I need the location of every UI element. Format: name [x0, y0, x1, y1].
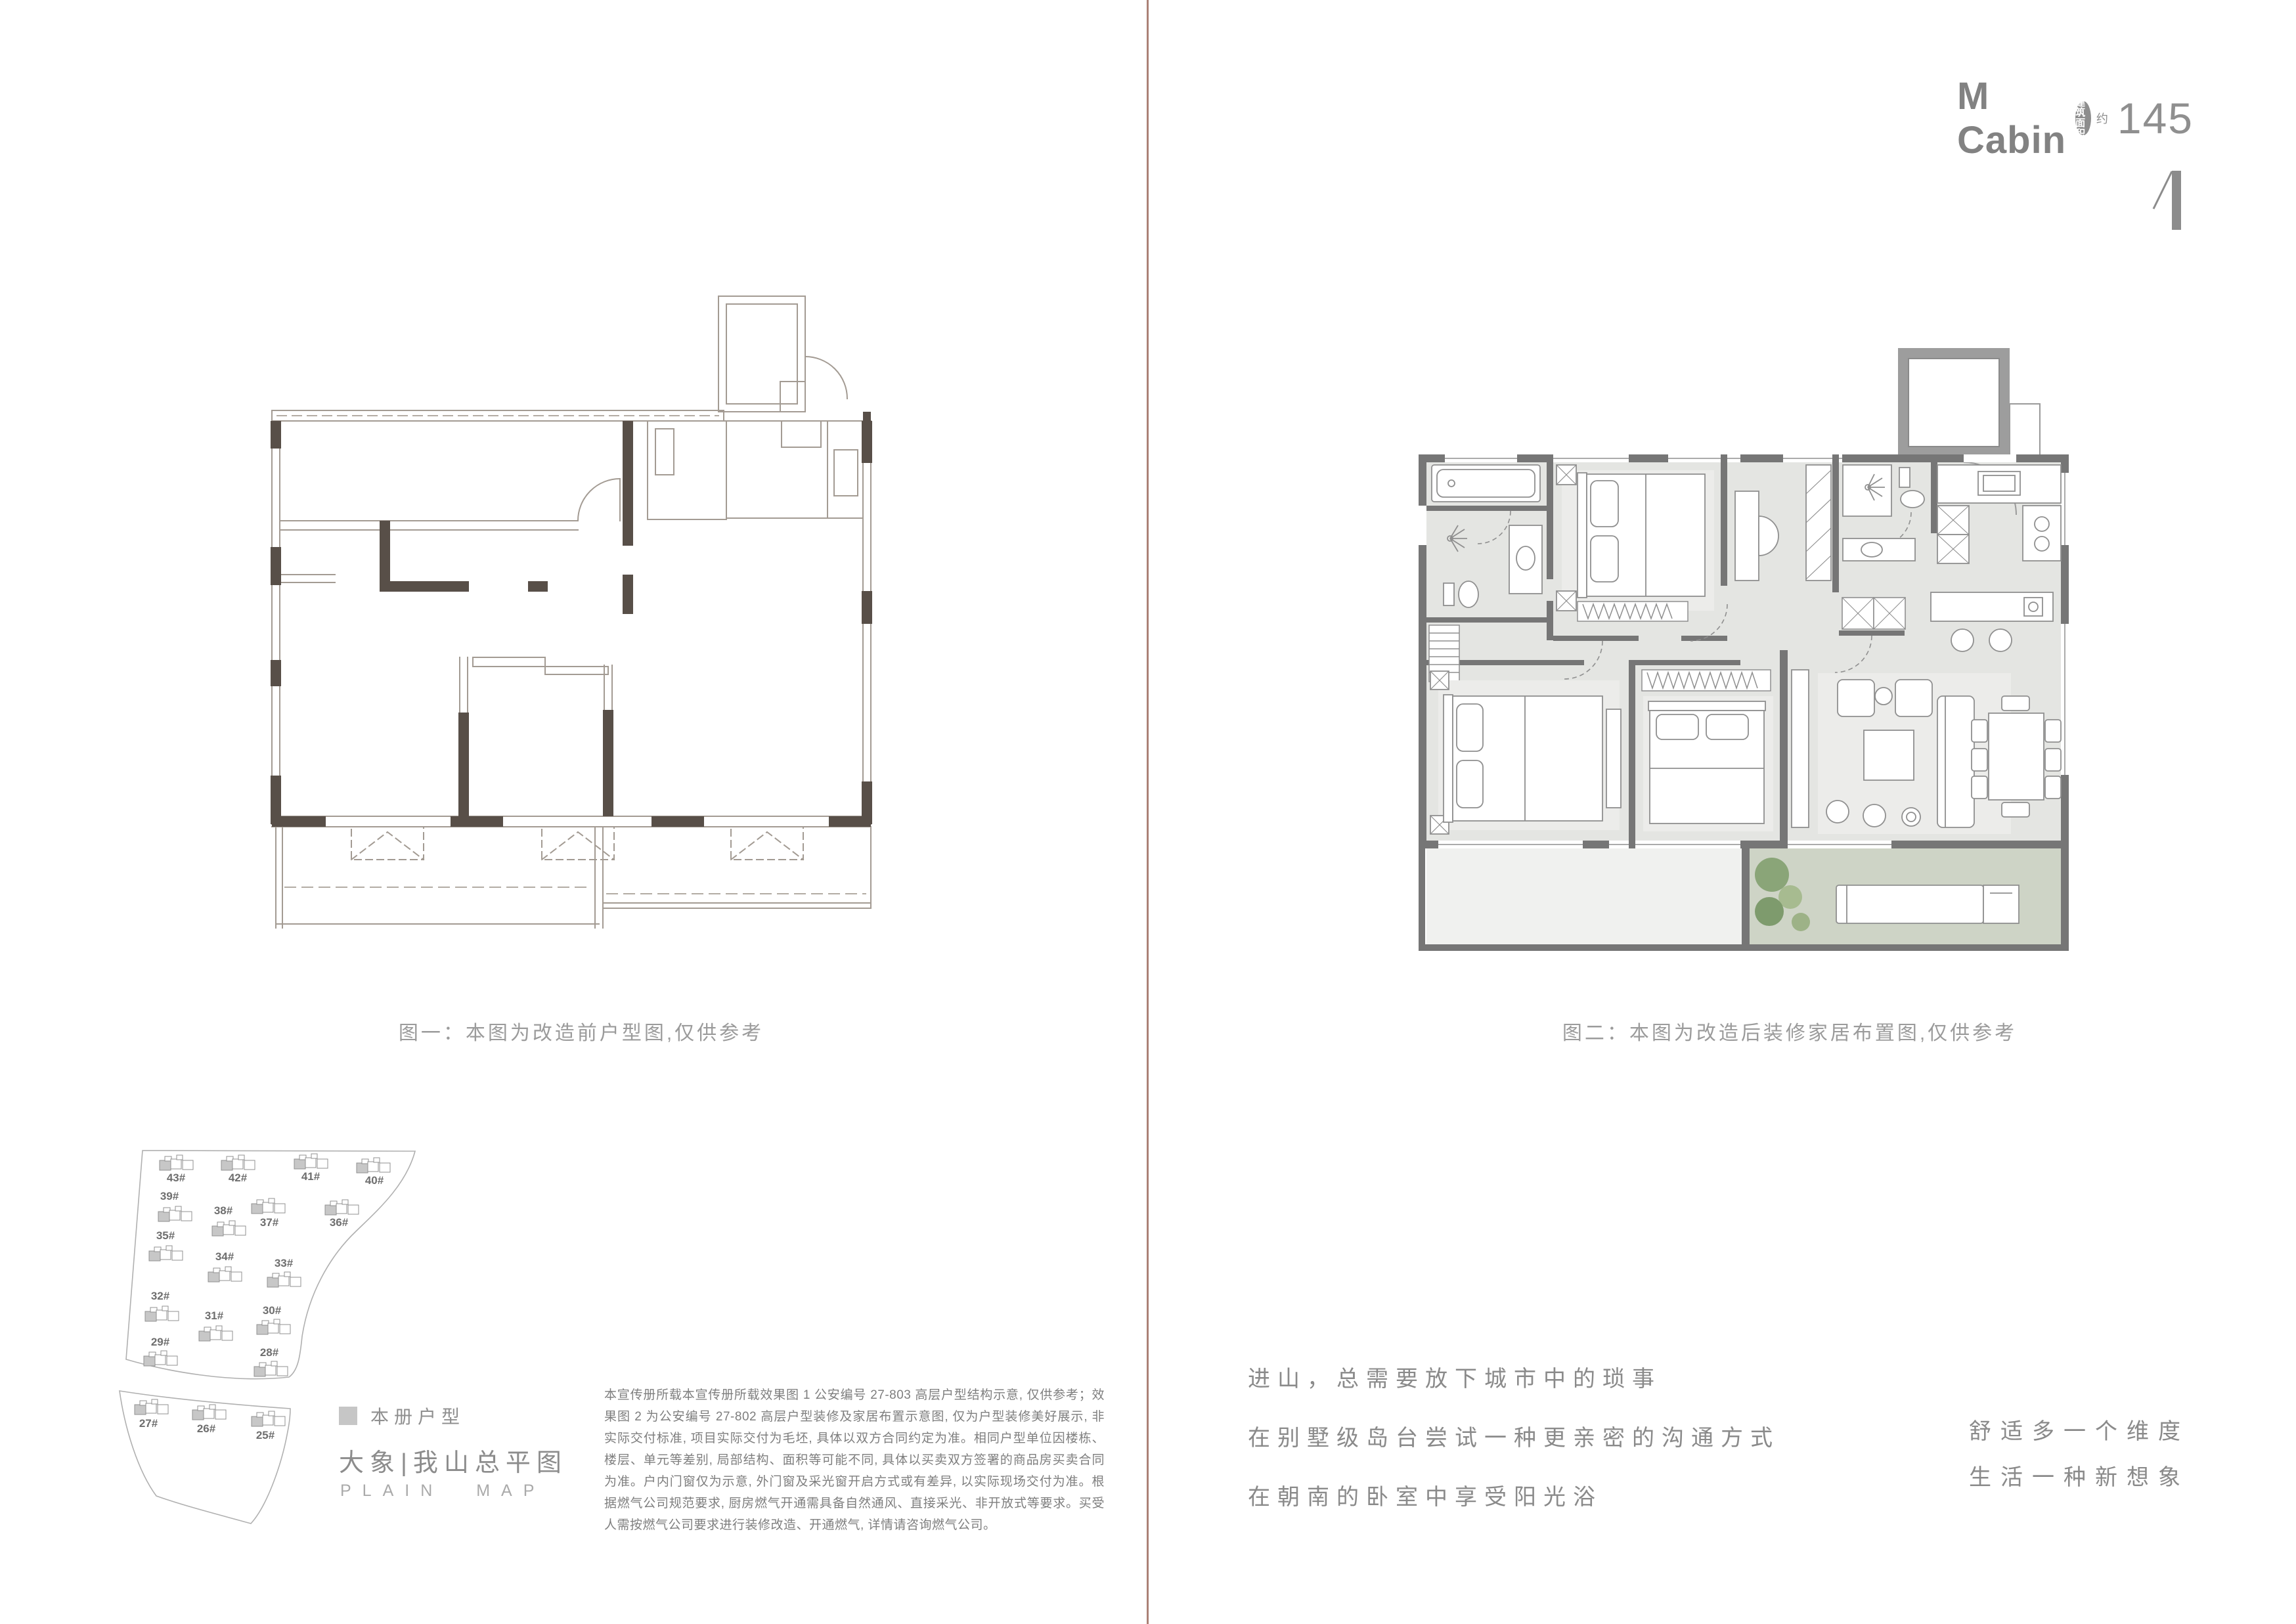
building-label: 28# — [260, 1346, 279, 1359]
badge-line2: 面积 — [2075, 118, 2091, 139]
legend-swatch — [339, 1407, 357, 1425]
slogan-line: 生活一种新想象 — [1969, 1459, 2190, 1491]
building-label: 25# — [256, 1429, 275, 1441]
brochure-spread: M Cabin 建筑 面积 约 145 — [0, 0, 2296, 1624]
slogan-line: 舒适多一个维度 — [1969, 1413, 2190, 1445]
building-area-badge: 建筑 面积 — [2075, 101, 2091, 135]
balcony-bench — [1836, 885, 2019, 923]
building-label: 31# — [205, 1309, 224, 1322]
page-number-mark — [2144, 164, 2197, 236]
figure2-caption: 图二：本图为改造后装修家居布置图,仅供参考 — [1537, 1017, 2042, 1045]
building-label: 41# — [301, 1170, 320, 1183]
wardrobe-3 — [1642, 670, 1771, 691]
wardrobe-1 — [1578, 602, 1688, 621]
sitemap-legend: 本册户型 — [339, 1403, 465, 1429]
approx-label: 约 — [2096, 110, 2108, 127]
sitemap-subtitle: PLAIN MAP — [340, 1481, 545, 1501]
body-line: 在别墅级岛台尝试一种更亲密的沟通方式 — [1248, 1420, 1780, 1452]
building-label: 26# — [197, 1422, 216, 1435]
building-label: 37# — [260, 1216, 279, 1229]
building-label: 43# — [167, 1172, 186, 1184]
bedroom-2 — [1430, 671, 1621, 834]
body-line: 在朝南的卧室中享受阳光浴 — [1248, 1479, 1602, 1511]
tv-cabinet — [1792, 670, 1809, 827]
building-label: 39# — [160, 1190, 179, 1202]
legend-label: 本册户型 — [370, 1403, 465, 1429]
building-label: 42# — [229, 1172, 248, 1184]
area-number: 145 — [2117, 93, 2194, 143]
balcony-left — [1426, 848, 1750, 946]
disclaimer-text: 本宣传册所载本宣传册所载效果图 1 公安编号 27-803 高层户型结构示意, … — [604, 1384, 1105, 1536]
sitemap-title: 大象|我山总平图 — [339, 1442, 567, 1478]
floorplan-before — [263, 292, 880, 942]
floorplan-after — [1412, 341, 2075, 959]
building-label: 35# — [156, 1229, 175, 1242]
page-gutter-line — [1147, 0, 1149, 1624]
building-label: 30# — [263, 1304, 282, 1317]
building-label: 36# — [330, 1216, 349, 1229]
badge-line1: 建筑 — [2075, 98, 2091, 119]
building-label: 27# — [139, 1417, 158, 1430]
brand-title: M Cabin — [1957, 74, 2066, 162]
building-label: 38# — [214, 1204, 233, 1217]
building-label: 34# — [215, 1250, 234, 1263]
hall-closet — [1842, 598, 1905, 629]
header: M Cabin 建筑 面积 约 145 — [1957, 92, 2194, 144]
building-label: 33# — [275, 1257, 294, 1269]
body-line: 进山，总需要放下城市中的琐事 — [1248, 1361, 1662, 1393]
building-label: 32# — [151, 1290, 170, 1302]
building-label: 40# — [365, 1174, 384, 1187]
bedroom-1 — [1556, 465, 1714, 611]
figure1-caption: 图一：本图为改造前户型图,仅供参考 — [328, 1017, 834, 1045]
building-label: 29# — [151, 1336, 170, 1348]
